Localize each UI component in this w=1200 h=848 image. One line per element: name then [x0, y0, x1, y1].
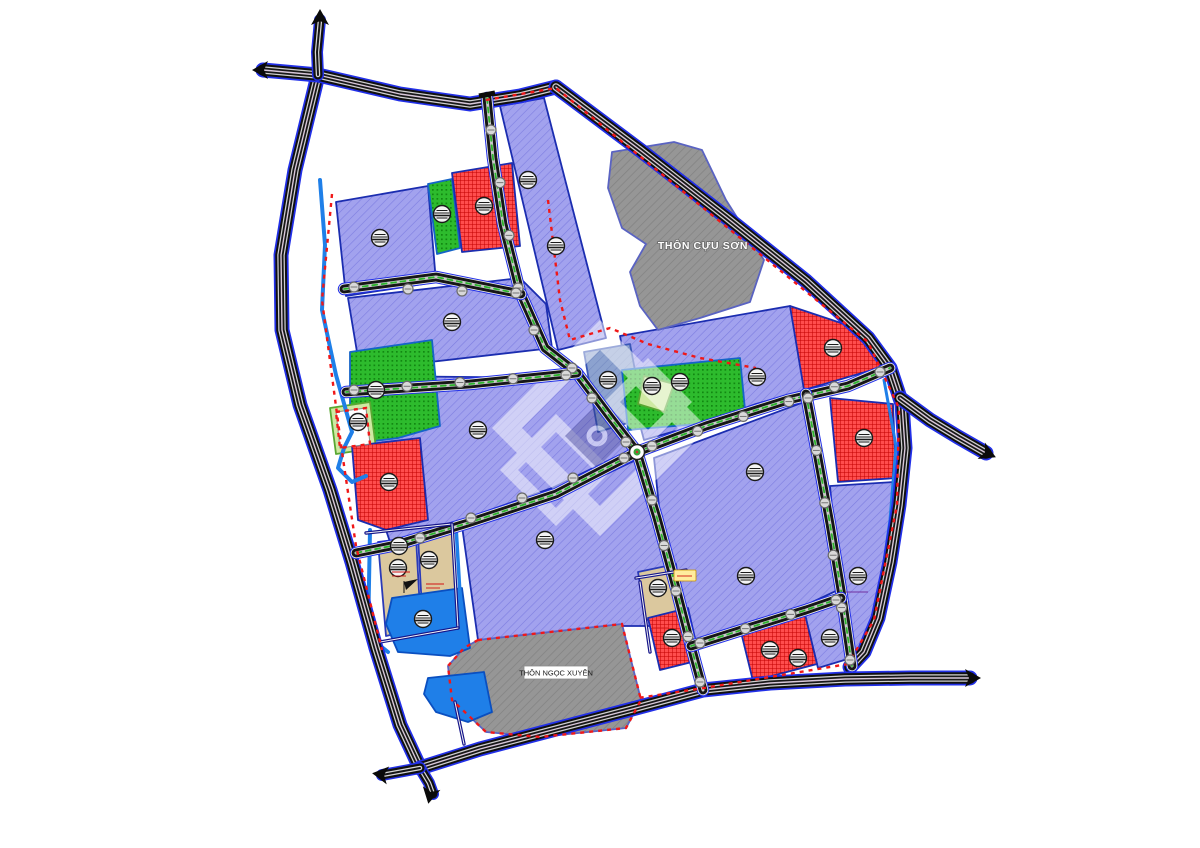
tree-icon: [561, 370, 571, 380]
parcel-balloon-icon: [644, 378, 661, 395]
road-stripe: [900, 398, 986, 453]
tree-icon: [671, 586, 681, 596]
parcel-balloon-icon: [391, 538, 408, 555]
road-north-stub: [317, 20, 320, 75]
tree-icon: [619, 453, 629, 463]
small-label-box: [674, 570, 696, 581]
parcel-balloon-icon: [381, 474, 398, 491]
tree-icon: [659, 541, 669, 551]
road-west-stub: [382, 768, 420, 775]
tree-icon: [695, 638, 705, 648]
tree-icon: [803, 393, 813, 403]
tree-icon: [349, 385, 359, 395]
tree-icon: [349, 282, 359, 292]
tree-icon: [568, 473, 578, 483]
parcel-balloon-icon: [762, 642, 779, 659]
parcel-balloon-icon: [650, 580, 667, 597]
parcel-balloon-icon: [350, 414, 367, 431]
parcel-balloon-icon: [470, 422, 487, 439]
parcel-balloon-icon: [390, 560, 407, 577]
village-label-top: THÔN CỰU SƠN: [658, 239, 748, 252]
parcel-balloon-icon: [415, 611, 432, 628]
tree-icon: [466, 513, 476, 523]
tree-icon: [647, 441, 657, 451]
parcel-balloon-icon: [672, 374, 689, 391]
tree-icon: [828, 550, 838, 560]
parcel-balloon-icon: [444, 314, 461, 331]
tree-icon: [875, 367, 885, 377]
parcel-balloon-icon: [421, 552, 438, 569]
tree-icon: [415, 533, 425, 543]
road-end-cap: [479, 93, 495, 96]
parcel-balloon-icon: [537, 532, 554, 549]
tree-icon: [845, 655, 855, 665]
tree-icon: [786, 609, 796, 619]
tree-icon: [647, 495, 657, 505]
tree-icon: [511, 288, 521, 298]
parcel-balloon-icon: [825, 340, 842, 357]
tree-icon: [621, 437, 631, 447]
tree-icon: [811, 445, 821, 455]
roundabout: [630, 445, 645, 460]
tree-icon: [740, 624, 750, 634]
tree-icon: [508, 374, 518, 384]
tree-icon: [693, 426, 703, 436]
parcel-balloon-icon: [476, 198, 493, 215]
tree-icon: [529, 325, 539, 335]
parcel-balloon-icon: [434, 206, 451, 223]
parcel-balloon-icon: [747, 464, 764, 481]
tree-icon: [504, 230, 514, 240]
tree-icon: [517, 493, 527, 503]
tree-icon: [486, 125, 496, 135]
planning-map-canvas: THÔN CỰU SƠN THÔN NGỌC XUYÊN: [0, 0, 1200, 848]
tree-icon: [403, 284, 413, 294]
parcel-balloon-icon: [856, 430, 873, 447]
parcel-balloon-icon: [372, 230, 389, 247]
parcel-balloon-icon: [790, 650, 807, 667]
parcel-balloon-icon: [822, 630, 839, 647]
tree-icon: [683, 632, 693, 642]
parcel-balloon-icon: [600, 372, 617, 389]
tree-icon: [495, 178, 505, 188]
parcel-balloon-icon: [548, 238, 565, 255]
parcel-balloon-icon: [520, 172, 537, 189]
parcel-balloon-icon: [368, 382, 385, 399]
tree-icon: [455, 378, 465, 388]
tree-icon: [820, 498, 830, 508]
tree-icon: [829, 382, 839, 392]
tree-icon: [457, 286, 467, 296]
tree-icon: [695, 677, 705, 687]
tree-icon: [784, 397, 794, 407]
tree-icon: [587, 393, 597, 403]
village-label-bottom: THÔN NGỌC XUYÊN: [519, 669, 593, 678]
parcel-balloon-icon: [664, 630, 681, 647]
road-east-branch: [900, 398, 986, 453]
zoning-site-plan-map: THÔN CỰU SƠN THÔN NGỌC XUYÊN: [0, 0, 1200, 848]
tree-icon: [402, 381, 412, 391]
parcel-balloon-icon: [850, 568, 867, 585]
tree-icon: [831, 595, 841, 605]
parcel-balloon-icon: [749, 369, 766, 386]
tree-icon: [738, 411, 748, 421]
parcel-balloon-icon: [738, 568, 755, 585]
